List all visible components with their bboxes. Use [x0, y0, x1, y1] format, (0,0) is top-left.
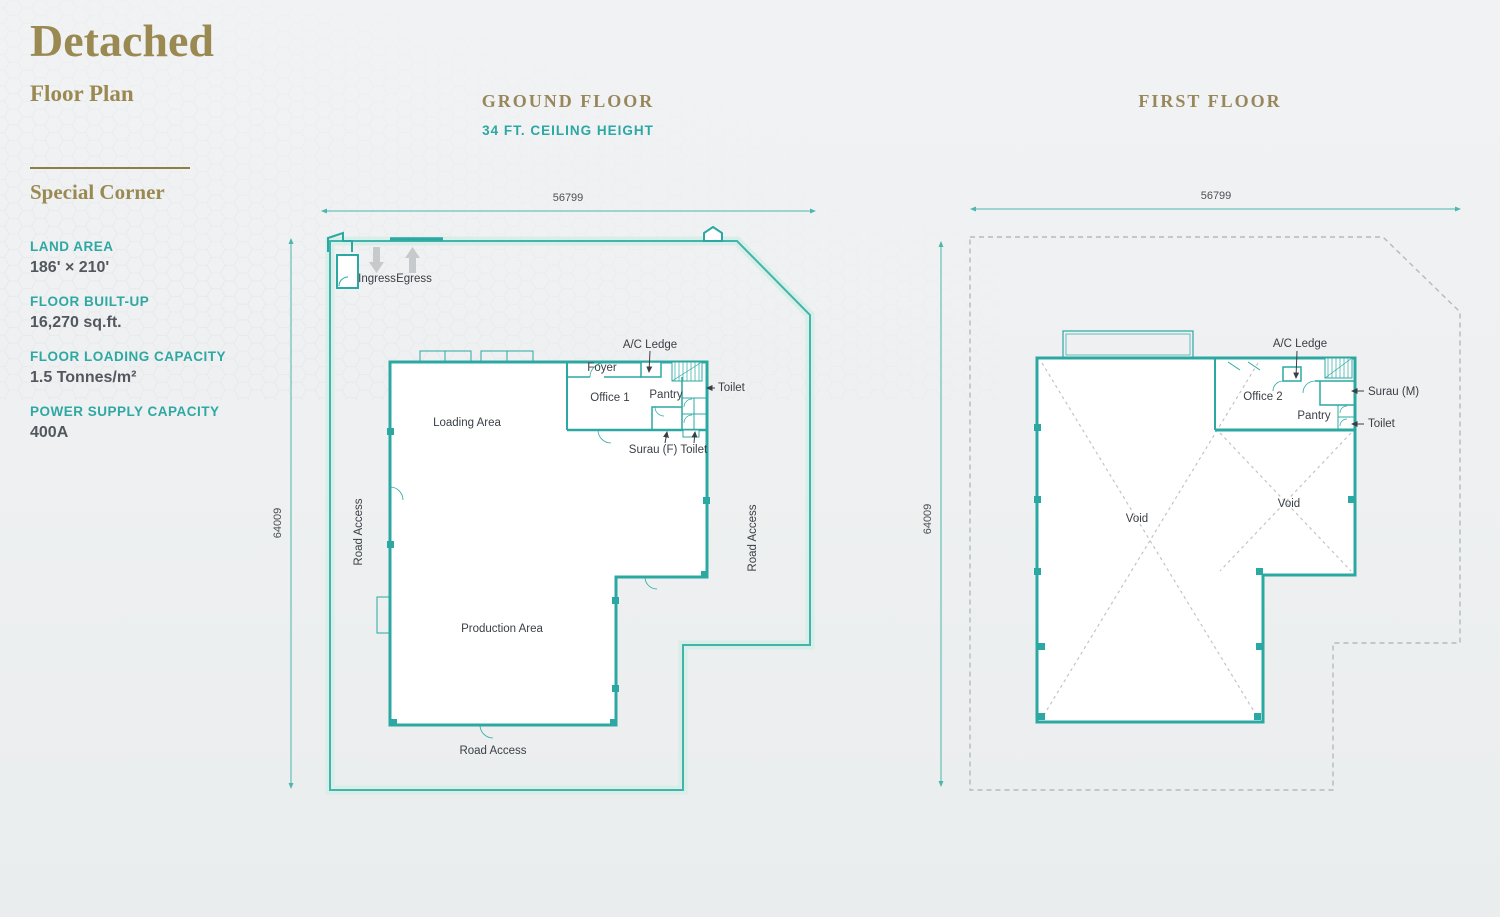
ff-building	[1034, 331, 1355, 722]
gf-height-dim: 64009	[272, 508, 284, 539]
ingress-arrow-icon	[369, 247, 384, 273]
gf-ac-ledge-label: A/C Ledge	[623, 339, 677, 351]
ff-stairs-icon	[1325, 358, 1352, 378]
gf-loading-area-label: Loading Area	[433, 417, 501, 429]
ff-surau-label: Surau (M)	[1368, 386, 1419, 398]
gf-surau-toilet-label: Surau (F) Toilet	[629, 444, 708, 456]
ff-void-left-label: Void	[1126, 513, 1148, 525]
egress-label: Egress	[396, 273, 432, 285]
gf-toilet-label: Toilet	[718, 382, 746, 394]
ground-floor-plan: 56799 64009 Ingress Egress	[272, 192, 815, 790]
gf-foyer-label: Foyer	[587, 362, 617, 374]
ff-void-right-label: Void	[1278, 498, 1300, 510]
ff-office2-label: Office 2	[1243, 391, 1282, 403]
gf-pantry-label: Pantry	[649, 389, 682, 401]
ff-width-dim: 56799	[1201, 190, 1232, 202]
floor-plan-page: Detached Floor Plan Special Corner LAND …	[0, 0, 1500, 917]
gf-building	[377, 351, 710, 738]
ff-pantry-label: Pantry	[1297, 410, 1330, 422]
gf-ingress-egress: Ingress Egress	[358, 247, 432, 285]
gf-production-area-label: Production Area	[461, 623, 543, 635]
gf-road-access-left-label: Road Access	[353, 498, 365, 565]
gf-width-dim: 56799	[553, 192, 584, 204]
ff-ac-ledge-label: A/C Ledge	[1273, 338, 1327, 350]
gf-road-access-right-label: Road Access	[747, 504, 759, 571]
ingress-label: Ingress	[358, 273, 396, 285]
first-floor-plan: 56799 64009	[922, 190, 1460, 790]
floor-plans-drawing: 56799 64009 Ingress Egress	[0, 0, 1500, 917]
gf-road-access-bottom-label: Road Access	[459, 745, 526, 757]
ff-height-dim: 64009	[922, 504, 934, 535]
ff-louvers	[1063, 331, 1193, 358]
gf-stairs-icon	[672, 362, 702, 381]
egress-arrow-icon	[405, 247, 420, 273]
ff-toilet-label: Toilet	[1368, 418, 1396, 430]
gf-office1-label: Office 1	[590, 392, 629, 404]
